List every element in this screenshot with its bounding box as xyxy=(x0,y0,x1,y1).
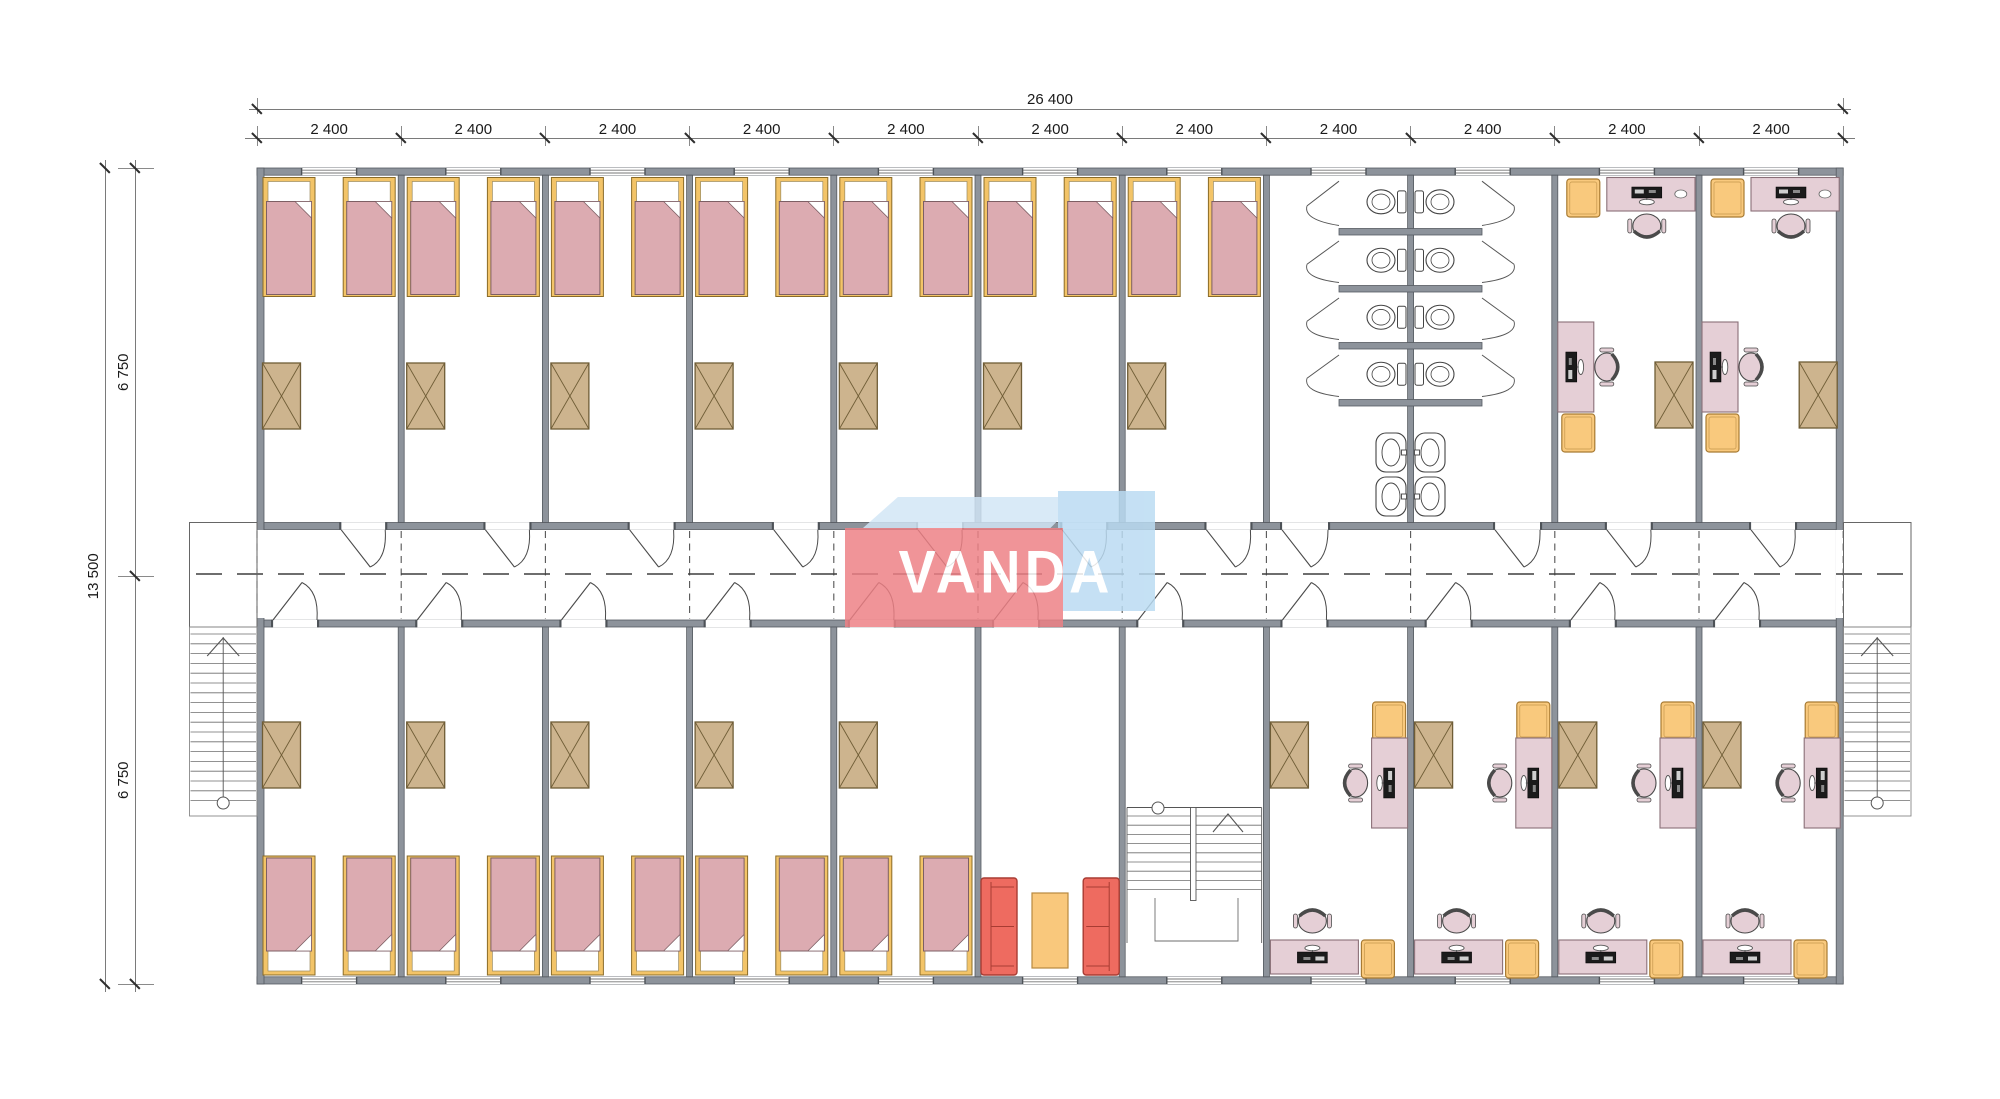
bed xyxy=(920,178,972,297)
floor-plan: 26 400 13 500 6 750 6 750 VANDA 2 4002 4… xyxy=(0,0,2000,1099)
dim-bay-width: 2 400 xyxy=(722,122,802,139)
partition-top xyxy=(687,175,693,522)
office-chair xyxy=(1628,214,1666,238)
bed xyxy=(1064,178,1116,297)
office-chair xyxy=(1488,764,1512,802)
door-opening xyxy=(706,620,750,628)
wardrobe xyxy=(695,722,733,788)
door-jamb xyxy=(1425,620,1427,628)
door-jamb xyxy=(1749,522,1751,530)
bed xyxy=(487,856,539,975)
bed xyxy=(263,178,315,297)
door-leaf xyxy=(630,530,659,567)
door-swing xyxy=(1600,583,1615,621)
door-opening xyxy=(561,620,605,628)
door-jamb xyxy=(1280,620,1282,628)
dim-bay-width: 2 400 xyxy=(1154,122,1234,139)
door-jamb xyxy=(1250,522,1252,530)
bed xyxy=(696,178,748,297)
toilet xyxy=(1415,362,1454,386)
bed xyxy=(407,856,459,975)
window xyxy=(445,168,501,175)
door-swing xyxy=(1167,583,1182,621)
door-jamb xyxy=(1605,522,1607,530)
office-chair xyxy=(1344,764,1368,802)
interior-staircase xyxy=(1127,802,1262,943)
cabinet xyxy=(1562,414,1595,452)
door-opening xyxy=(273,620,317,628)
cabinet xyxy=(1805,702,1838,740)
window xyxy=(1022,977,1078,984)
sofa xyxy=(981,878,1017,975)
wardrobe xyxy=(1415,722,1453,788)
door-leaf xyxy=(561,583,590,621)
door-opening xyxy=(1571,620,1615,628)
door-opening xyxy=(1282,620,1326,628)
bed xyxy=(632,178,684,297)
dim-total-width: 26 400 xyxy=(990,92,1110,109)
window xyxy=(1310,168,1366,175)
exterior-staircase xyxy=(190,523,258,817)
wardrobe xyxy=(1270,722,1308,788)
sink xyxy=(1376,433,1407,472)
window xyxy=(1166,977,1222,984)
window xyxy=(878,168,934,175)
bed xyxy=(1128,178,1180,297)
window xyxy=(445,977,501,984)
sink xyxy=(1415,477,1446,516)
stall-divider-wall xyxy=(1339,400,1482,407)
door-jamb xyxy=(483,522,485,530)
door-swing xyxy=(735,583,750,621)
door-jamb xyxy=(339,522,341,530)
bed xyxy=(840,856,892,975)
cabinet xyxy=(1373,702,1406,740)
door-swing xyxy=(1235,530,1250,567)
door-opening xyxy=(1607,522,1651,530)
door-jamb xyxy=(559,620,561,628)
door-jamb xyxy=(1328,522,1330,530)
exterior-staircase xyxy=(1844,523,1912,817)
wardrobe xyxy=(407,722,445,788)
partition-top xyxy=(398,175,404,522)
partition-top xyxy=(831,175,837,522)
wardrobe xyxy=(1799,362,1837,428)
bed xyxy=(1208,178,1260,297)
door-swing xyxy=(302,583,317,621)
extension-line xyxy=(257,98,258,114)
cabinet xyxy=(1650,940,1683,978)
door-jamb xyxy=(317,620,319,628)
stall-door xyxy=(1307,241,1339,283)
partition-bottom xyxy=(687,627,693,977)
cabinet xyxy=(1567,179,1600,217)
door-leaf xyxy=(774,530,803,567)
door-jamb xyxy=(772,522,774,530)
dim-bay-width: 2 400 xyxy=(433,122,513,139)
office-chair xyxy=(1582,909,1620,933)
window xyxy=(1455,977,1511,984)
door-leaf xyxy=(1571,583,1600,621)
bed xyxy=(343,178,395,297)
office-chair xyxy=(1438,909,1476,933)
bed xyxy=(776,856,828,975)
door-jamb xyxy=(704,620,706,628)
door-leaf xyxy=(1607,530,1636,567)
partition-bottom xyxy=(1263,627,1269,977)
window xyxy=(1599,168,1655,175)
dim-bay-width: 2 400 xyxy=(866,122,946,139)
dim-bay-width: 2 400 xyxy=(1299,122,1379,139)
dim-half-height-top: 6 750 xyxy=(116,312,133,432)
door-swing xyxy=(1311,583,1326,621)
dim-total-height: 13 500 xyxy=(86,516,103,636)
window xyxy=(878,977,934,984)
wardrobe xyxy=(407,363,445,429)
dimension-line xyxy=(105,160,106,992)
stall-divider-wall xyxy=(1339,229,1482,236)
door-opening xyxy=(485,522,529,530)
bed xyxy=(551,178,603,297)
sink xyxy=(1376,477,1407,516)
stall-door xyxy=(1307,355,1339,397)
wardrobe xyxy=(263,363,301,429)
door-leaf xyxy=(1495,530,1524,567)
stall-door xyxy=(1307,181,1339,225)
door-opening xyxy=(417,620,461,628)
coffee-table xyxy=(1032,893,1068,968)
partition-top xyxy=(542,175,548,522)
toilet xyxy=(1415,190,1454,214)
desk-item xyxy=(1819,190,1831,198)
door-swing xyxy=(1744,583,1759,621)
cabinet xyxy=(1711,179,1744,217)
door-leaf xyxy=(1282,583,1311,621)
door-opening xyxy=(1715,620,1759,628)
sink xyxy=(1415,433,1446,472)
toilet xyxy=(1367,305,1406,329)
toilet xyxy=(1367,248,1406,272)
window xyxy=(1743,977,1799,984)
dim-half-height-bottom: 6 750 xyxy=(116,720,133,840)
toilet xyxy=(1415,248,1454,272)
door-jamb xyxy=(271,620,273,628)
wardrobe xyxy=(695,363,733,429)
door-jamb xyxy=(385,522,387,530)
bed xyxy=(632,856,684,975)
partition-bottom xyxy=(1696,627,1702,977)
door-swing xyxy=(1311,530,1328,567)
door-jamb xyxy=(605,620,607,628)
door-swing xyxy=(1456,583,1471,621)
door-leaf xyxy=(417,583,446,621)
partition-top xyxy=(975,175,981,522)
window xyxy=(1455,168,1511,175)
bed xyxy=(343,856,395,975)
cabinet xyxy=(1517,702,1550,740)
wardrobe xyxy=(551,722,589,788)
stall-door xyxy=(1482,355,1514,397)
bed xyxy=(696,856,748,975)
bed xyxy=(551,856,603,975)
bed xyxy=(984,178,1036,297)
door-leaf xyxy=(1751,530,1780,567)
door-opening xyxy=(1206,522,1250,530)
door-jamb xyxy=(1615,620,1617,628)
partition-top xyxy=(1119,175,1125,522)
door-jamb xyxy=(1569,620,1571,628)
door-jamb xyxy=(1540,522,1542,530)
sofa xyxy=(1083,878,1119,975)
door-opening xyxy=(1427,620,1471,628)
wardrobe xyxy=(839,722,877,788)
dim-bay-width: 2 400 xyxy=(1443,122,1523,139)
wardrobe xyxy=(839,363,877,429)
door-leaf xyxy=(1427,583,1456,621)
logo-text: VANDA xyxy=(851,536,1161,606)
cabinet xyxy=(1794,940,1827,978)
office-chair xyxy=(1739,348,1763,386)
window xyxy=(734,168,790,175)
office-chair xyxy=(1293,909,1331,933)
door-jamb xyxy=(1713,620,1715,628)
cabinet xyxy=(1506,940,1539,978)
office-chair xyxy=(1726,909,1764,933)
door-swing xyxy=(1636,530,1651,567)
partition-top xyxy=(1263,175,1269,522)
door-swing xyxy=(803,530,818,567)
bed xyxy=(920,856,972,975)
door-leaf xyxy=(485,530,514,567)
extension-line xyxy=(1843,98,1844,114)
window xyxy=(589,168,645,175)
door-leaf xyxy=(273,583,302,621)
door-swing xyxy=(446,583,461,621)
office-chair xyxy=(1776,764,1800,802)
door-jamb xyxy=(1651,522,1653,530)
door-leaf xyxy=(341,530,370,567)
dim-bay-width: 2 400 xyxy=(1731,122,1811,139)
door-jamb xyxy=(461,620,463,628)
partition-top xyxy=(1552,175,1558,522)
partition-bottom xyxy=(975,627,981,977)
door-jamb xyxy=(674,522,676,530)
window xyxy=(1166,168,1222,175)
bed xyxy=(776,178,828,297)
bed xyxy=(840,178,892,297)
door-jamb xyxy=(1326,620,1328,628)
door-swing xyxy=(514,530,529,567)
door-jamb xyxy=(1280,522,1282,530)
dim-bay-width: 2 400 xyxy=(1010,122,1090,139)
dimension-line xyxy=(249,109,1851,110)
stall-door xyxy=(1307,298,1339,340)
door-opening xyxy=(1751,522,1795,530)
cabinet xyxy=(1361,940,1394,978)
logo-top-face xyxy=(863,497,1081,528)
partition-bottom xyxy=(542,627,548,977)
door-opening xyxy=(630,522,674,530)
door-jamb xyxy=(415,620,417,628)
wardrobe xyxy=(1128,363,1166,429)
window xyxy=(301,977,357,984)
stall-divider-wall xyxy=(1339,286,1482,293)
wardrobe xyxy=(1559,722,1597,788)
stall-door xyxy=(1482,298,1514,340)
door-leaf xyxy=(1282,530,1311,567)
door-jamb xyxy=(1182,620,1184,628)
door-swing xyxy=(370,530,385,567)
office-chair xyxy=(1772,214,1810,238)
door-swing xyxy=(1524,530,1540,567)
door-jamb xyxy=(1795,522,1797,530)
door-opening xyxy=(1282,522,1328,530)
window xyxy=(589,977,645,984)
wardrobe xyxy=(263,722,301,788)
window xyxy=(734,977,790,984)
door-opening xyxy=(341,522,385,530)
wardrobe xyxy=(984,363,1022,429)
door-leaf xyxy=(706,583,735,621)
window xyxy=(1310,977,1366,984)
office-chair xyxy=(1632,764,1656,802)
office-chair xyxy=(1595,348,1619,386)
cabinet xyxy=(1661,702,1694,740)
door-swing xyxy=(1780,530,1795,567)
door-opening xyxy=(1495,522,1540,530)
door-jamb xyxy=(1204,522,1206,530)
door-opening xyxy=(774,522,818,530)
window xyxy=(1022,168,1078,175)
door-leaf xyxy=(1206,530,1235,567)
partition-bottom xyxy=(1552,627,1558,977)
partition-bottom xyxy=(831,627,837,977)
window xyxy=(1743,168,1799,175)
stall-divider-wall xyxy=(1339,343,1482,350)
partition-bottom xyxy=(1119,627,1125,977)
desk-item xyxy=(1675,190,1687,198)
door-jamb xyxy=(529,522,531,530)
dim-bay-width: 2 400 xyxy=(289,122,369,139)
door-jamb xyxy=(1493,522,1495,530)
door-swing xyxy=(659,530,674,567)
door-swing xyxy=(590,583,605,621)
door-jamb xyxy=(1471,620,1473,628)
door-jamb xyxy=(750,620,752,628)
bed xyxy=(407,178,459,297)
toilet xyxy=(1367,362,1406,386)
window xyxy=(301,168,357,175)
partition-bottom xyxy=(398,627,404,977)
wardrobe xyxy=(551,363,589,429)
stall-door xyxy=(1482,181,1514,225)
partition-top xyxy=(1696,175,1702,522)
door-jamb xyxy=(818,522,820,530)
wardrobe xyxy=(1703,722,1741,788)
wardrobe xyxy=(1655,362,1693,428)
toilet xyxy=(1367,190,1406,214)
cabinet xyxy=(1706,414,1739,452)
dim-bay-width: 2 400 xyxy=(578,122,658,139)
door-jamb xyxy=(1759,620,1761,628)
window xyxy=(1599,977,1655,984)
bed xyxy=(487,178,539,297)
door-jamb xyxy=(628,522,630,530)
dim-bay-width: 2 400 xyxy=(1587,122,1667,139)
partition-bottom xyxy=(1408,627,1414,977)
vanda-logo-watermark: VANDA xyxy=(845,483,1167,631)
toilet xyxy=(1415,305,1454,329)
stall-door xyxy=(1482,241,1514,283)
door-leaf xyxy=(1715,583,1744,621)
bed xyxy=(263,856,315,975)
